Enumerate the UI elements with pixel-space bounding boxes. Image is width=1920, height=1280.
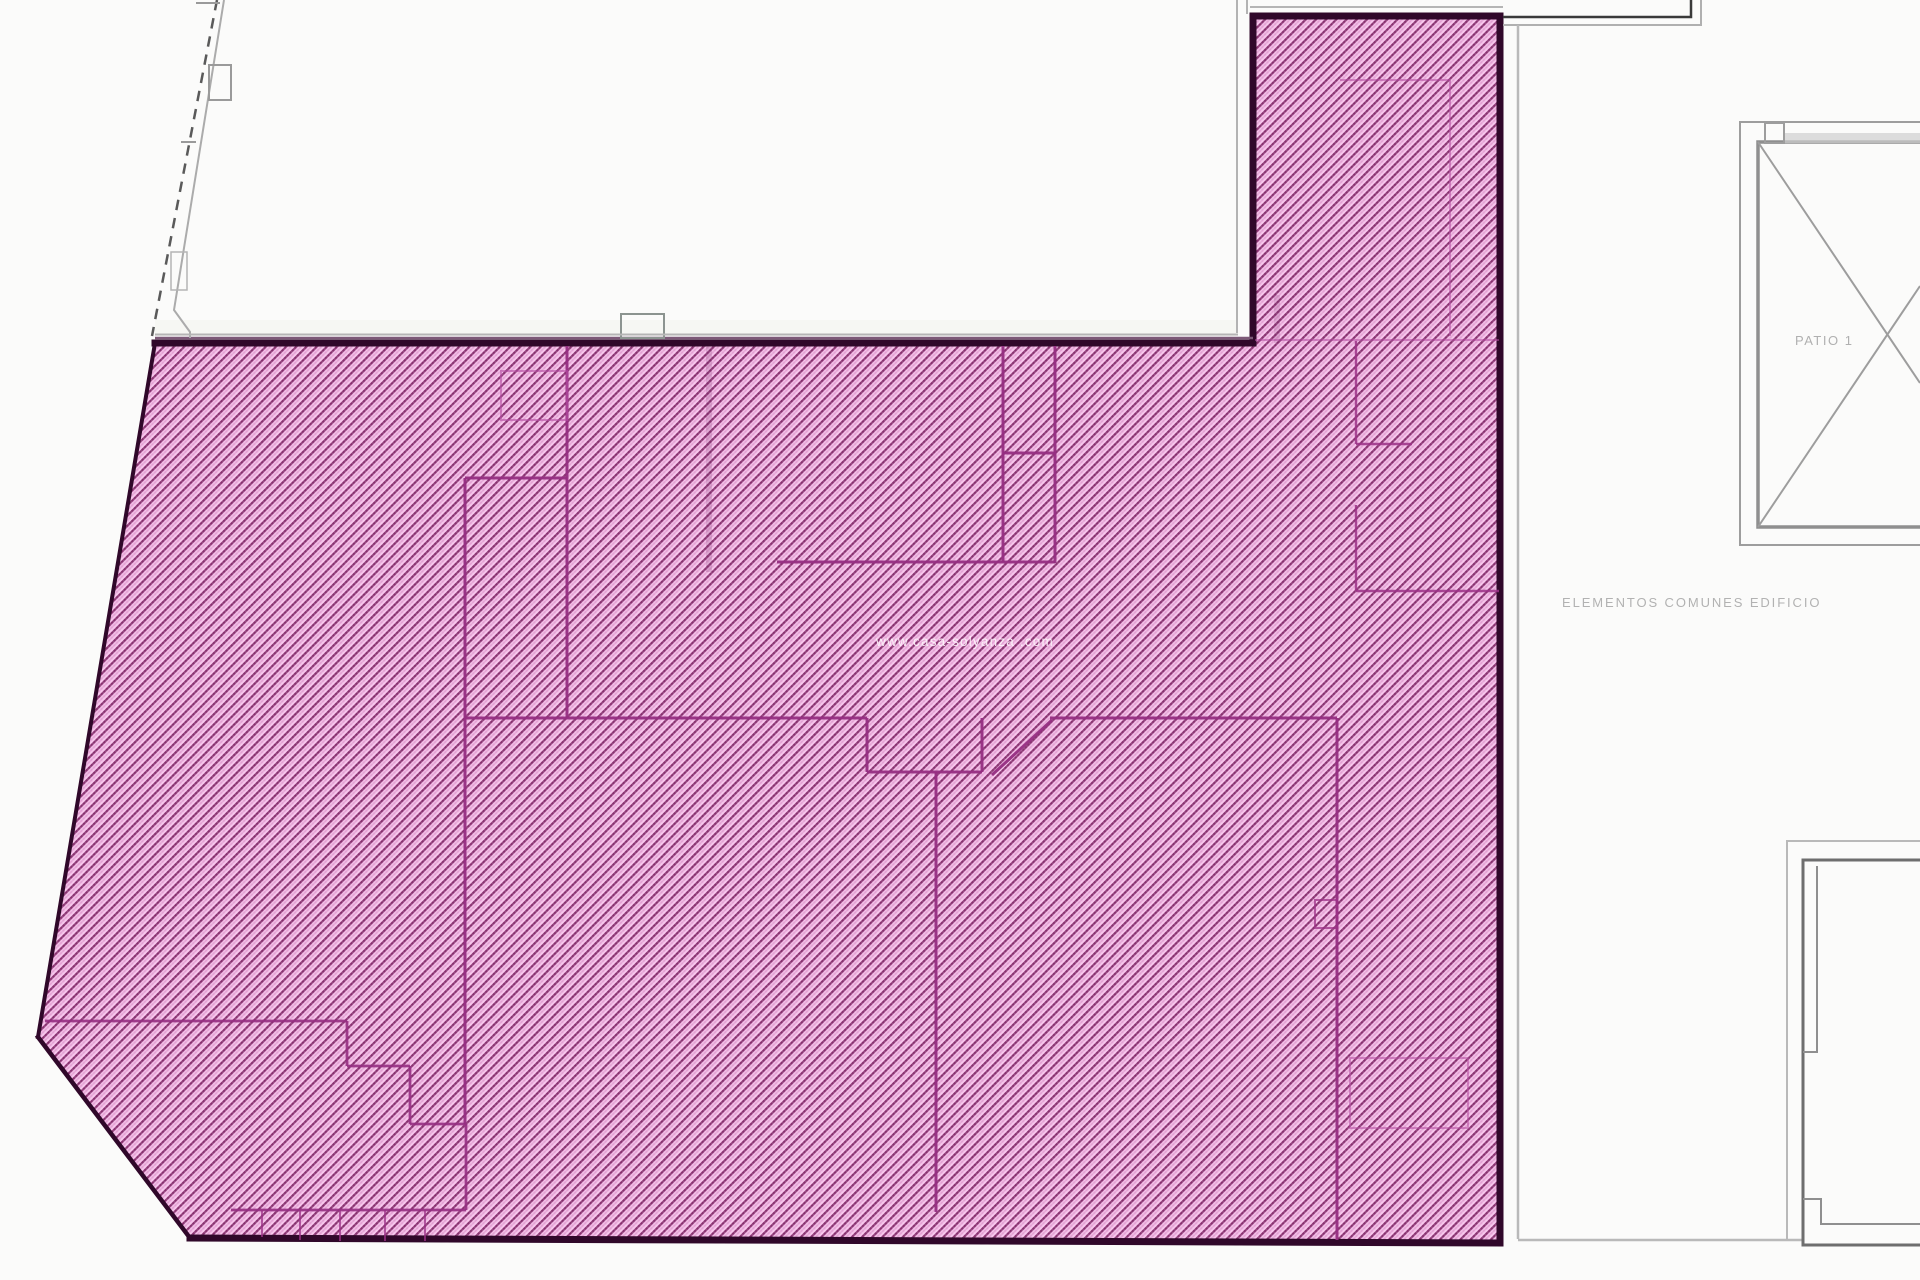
svg-text:ELEMENTOS COMUNES EDIFICIO: ELEMENTOS COMUNES EDIFICIO — [1562, 595, 1821, 610]
svg-text:www.casa-solyanza .com: www.casa-solyanza .com — [875, 634, 1054, 649]
svg-text:PATIO 1: PATIO 1 — [1795, 333, 1853, 348]
